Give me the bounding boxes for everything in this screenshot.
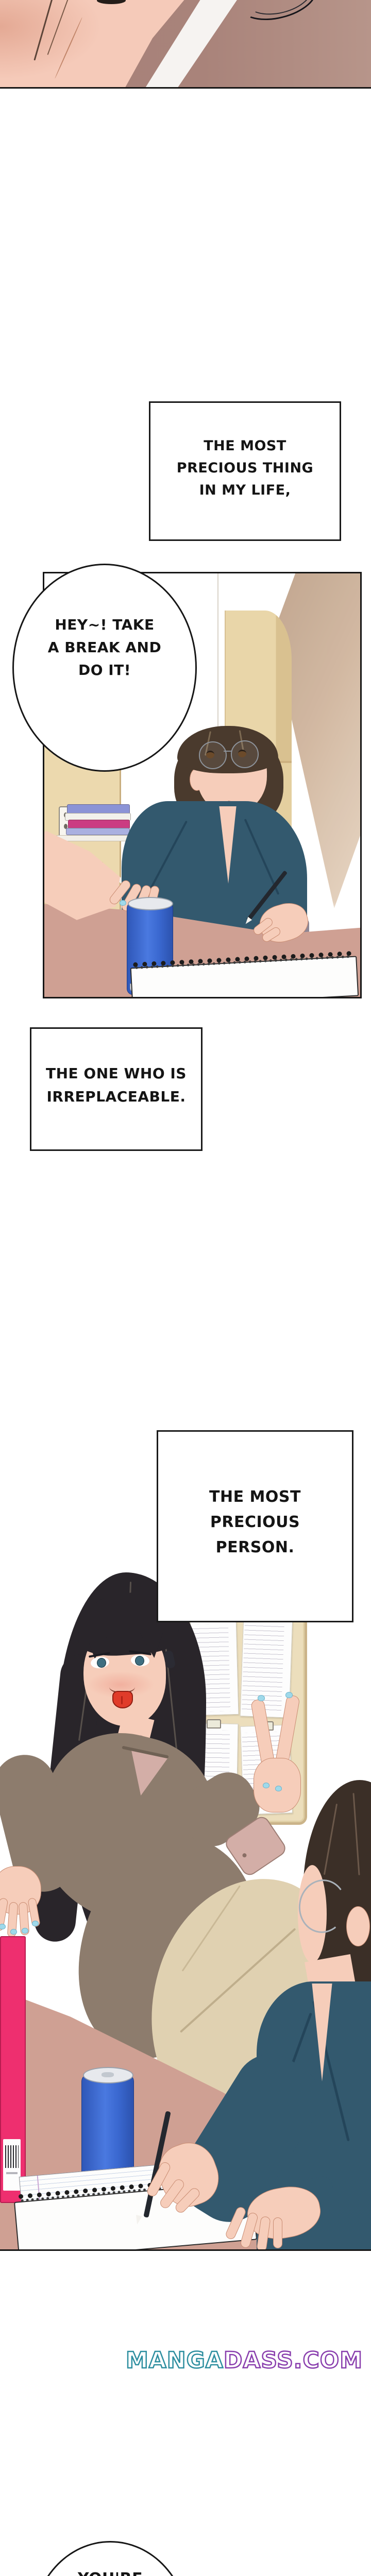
watermark-part1: MANGA bbox=[126, 2347, 224, 2374]
narration-box-2: THE ONE WHO IS IRREPLACEABLE. bbox=[30, 1027, 203, 1151]
tease-resting-hand bbox=[227, 2179, 330, 2251]
closeup-jaw-shade bbox=[0, 0, 119, 89]
narration-line: IRREPLACEABLE. bbox=[31, 1085, 201, 1108]
narration-line: IN MY LIFE, bbox=[150, 479, 340, 501]
narration-text: THE MOST PRECIOUS THING IN MY LIFE, bbox=[150, 435, 340, 501]
bubble-text: HEY~! TAKE A BREAK AND DO IT! bbox=[14, 614, 195, 682]
site-watermark: MANGADASS.COM bbox=[0, 2347, 371, 2374]
narration-line: PRECIOUS THING bbox=[150, 457, 340, 479]
speech-bubble-2: YOU'RE bbox=[32, 2541, 189, 2576]
narration-line: THE MOST bbox=[150, 435, 340, 457]
tease-boy bbox=[0, 1546, 371, 2251]
webtoon-page: THE MOST PRECIOUS THING IN MY LIFE, bbox=[0, 0, 371, 2576]
narration-line: THE MOST bbox=[158, 1484, 352, 1510]
narration-text: THE MOST PRECIOUS PERSON. bbox=[158, 1484, 352, 1560]
panel-face-closeup bbox=[0, 0, 371, 89]
bubble-line: DO IT! bbox=[14, 659, 195, 682]
bubble-text: YOU'RE bbox=[33, 2567, 187, 2576]
narration-box-3: THE MOST PRECIOUS PERSON. bbox=[157, 1430, 353, 1622]
bubble-line: YOU'RE bbox=[33, 2567, 187, 2576]
watermark-part2: DASS.COM bbox=[224, 2347, 363, 2374]
narration-line: PERSON. bbox=[158, 1535, 352, 1560]
narration-box-1: THE MOST PRECIOUS THING IN MY LIFE, bbox=[149, 401, 341, 541]
panel-tease-scene bbox=[0, 1546, 371, 2251]
narration-text: THE ONE WHO IS IRREPLACEABLE. bbox=[31, 1062, 201, 1108]
panel-border-bottom bbox=[0, 2249, 371, 2251]
speech-bubble-1: HEY~! TAKE A BREAK AND DO IT! bbox=[12, 564, 197, 772]
tease-boy-ear bbox=[346, 1906, 370, 1946]
tease-writing-hand bbox=[144, 2128, 227, 2236]
narration-line: THE ONE WHO IS bbox=[31, 1062, 201, 1085]
panel-border-bottom bbox=[0, 87, 371, 89]
narration-line: PRECIOUS bbox=[158, 1510, 352, 1535]
bubble-line: HEY~! TAKE bbox=[14, 614, 195, 636]
bubble-line: A BREAK AND bbox=[14, 636, 195, 659]
